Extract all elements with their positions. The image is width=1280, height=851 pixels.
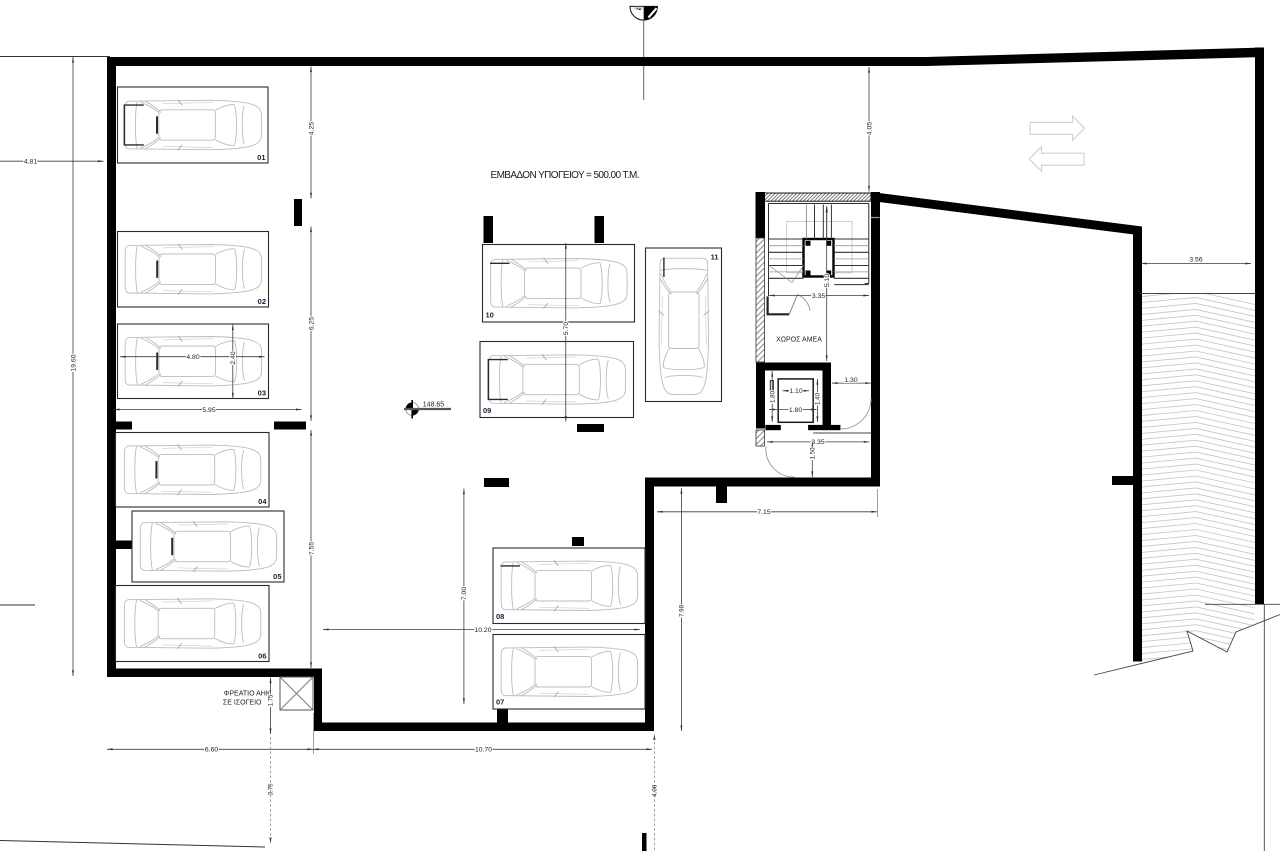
svg-text:1.80: 1.80	[769, 390, 776, 403]
svg-text:4.00: 4.00	[652, 784, 659, 797]
svg-text:ΣΕ ΙΣΟΓΕΙΟ: ΣΕ ΙΣΟΓΕΙΟ	[223, 700, 262, 707]
svg-text:3.35: 3.35	[812, 293, 825, 300]
svg-text:4.05: 4.05	[866, 122, 873, 135]
svg-text:10.70: 10.70	[475, 747, 492, 754]
svg-text:6.25: 6.25	[308, 317, 315, 330]
svg-text:ΧΩΡΟΣ ΑΜΕΑ: ΧΩΡΟΣ ΑΜΕΑ	[776, 336, 822, 343]
svg-text:10: 10	[486, 311, 494, 320]
svg-text:ΦΡΕΑΤΙΟ ΑΗΚ: ΦΡΕΑΤΙΟ ΑΗΚ	[224, 690, 271, 697]
svg-text:7.55: 7.55	[308, 542, 315, 555]
svg-text:5.10: 5.10	[824, 274, 831, 287]
svg-text:4.80: 4.80	[186, 354, 199, 361]
svg-text:05: 05	[273, 572, 281, 581]
svg-text:19.60: 19.60	[70, 354, 77, 371]
svg-text:07: 07	[496, 698, 504, 707]
svg-text:04: 04	[258, 497, 267, 506]
svg-text:06: 06	[258, 652, 266, 661]
svg-text:3.75: 3.75	[267, 783, 274, 796]
svg-text:3.56: 3.56	[1189, 256, 1202, 263]
svg-text:2.40: 2.40	[230, 351, 237, 364]
svg-text:09: 09	[483, 406, 491, 415]
svg-text:03: 03	[258, 389, 266, 398]
svg-text:3.35: 3.35	[811, 439, 824, 446]
svg-text:7.98: 7.98	[679, 604, 686, 617]
svg-text:11: 11	[711, 253, 719, 262]
svg-text:08: 08	[496, 612, 504, 621]
svg-text:01: 01	[257, 153, 265, 162]
svg-text:148.65: 148.65	[423, 402, 445, 409]
svg-text:5.70: 5.70	[563, 322, 570, 335]
svg-text:4.25: 4.25	[308, 122, 315, 135]
svg-text:1.80: 1.80	[789, 407, 802, 414]
svg-text:7.15: 7.15	[757, 509, 770, 516]
svg-text:1.50: 1.50	[809, 447, 816, 460]
svg-text:02: 02	[258, 297, 266, 306]
svg-text:1.10: 1.10	[789, 388, 802, 395]
svg-text:4.81: 4.81	[24, 159, 37, 166]
svg-text:6.60: 6.60	[205, 747, 218, 754]
svg-text:1.75: 1.75	[269, 694, 275, 706]
svg-text:ΕΜΒΑΔΟΝ ΥΠΟΓΕΙΟΥ = 500.00 Τ.Μ.: ΕΜΒΑΔΟΝ ΥΠΟΓΕΙΟΥ = 500.00 Τ.Μ.	[491, 170, 640, 181]
svg-text:7.00: 7.00	[461, 587, 468, 600]
svg-text:10.20: 10.20	[474, 627, 491, 634]
svg-text:1.40: 1.40	[815, 392, 822, 405]
svg-text:5.95: 5.95	[202, 407, 215, 414]
svg-text:1.30: 1.30	[844, 377, 857, 384]
